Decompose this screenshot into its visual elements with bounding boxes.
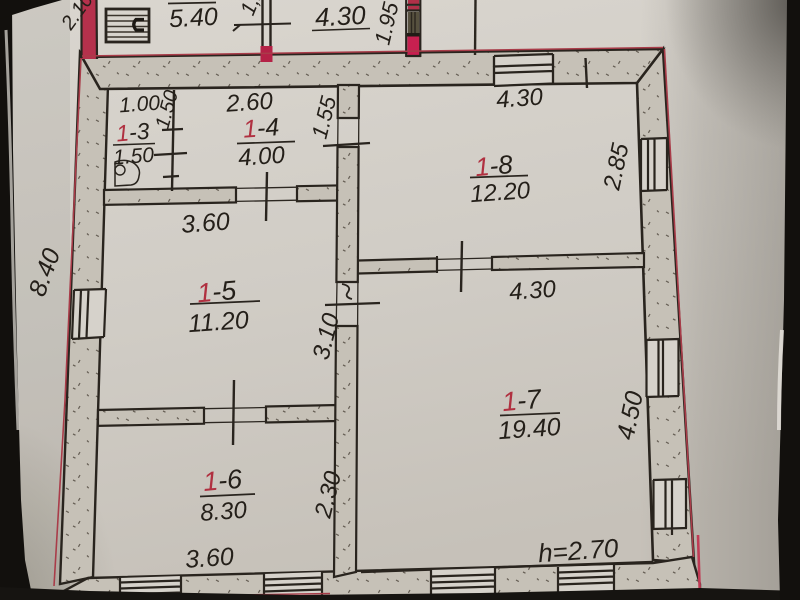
svg-text:3.60: 3.60	[184, 543, 235, 574]
svg-text:4.30: 4.30	[508, 276, 557, 306]
svg-text:5.40: 5.40	[168, 3, 218, 34]
svg-text:19.40: 19.40	[497, 413, 561, 445]
svg-text:8.30: 8.30	[199, 497, 248, 527]
svg-text:3.60: 3.60	[180, 208, 231, 239]
svg-text:1-6: 1-6	[202, 464, 244, 497]
svg-text:1-3: 1-3	[115, 118, 151, 147]
svg-text:12.20: 12.20	[469, 177, 531, 208]
svg-text:1-7: 1-7	[501, 384, 543, 417]
svg-text:11.20: 11.20	[187, 306, 250, 338]
svg-text:4.00: 4.00	[237, 142, 286, 172]
svg-text:1-4: 1-4	[242, 113, 280, 143]
svg-text:4.30: 4.30	[314, 0, 367, 32]
svg-text:h=2.70: h=2.70	[537, 533, 620, 569]
svg-text:1.50: 1.50	[112, 144, 155, 170]
svg-text:4.30: 4.30	[495, 83, 544, 113]
